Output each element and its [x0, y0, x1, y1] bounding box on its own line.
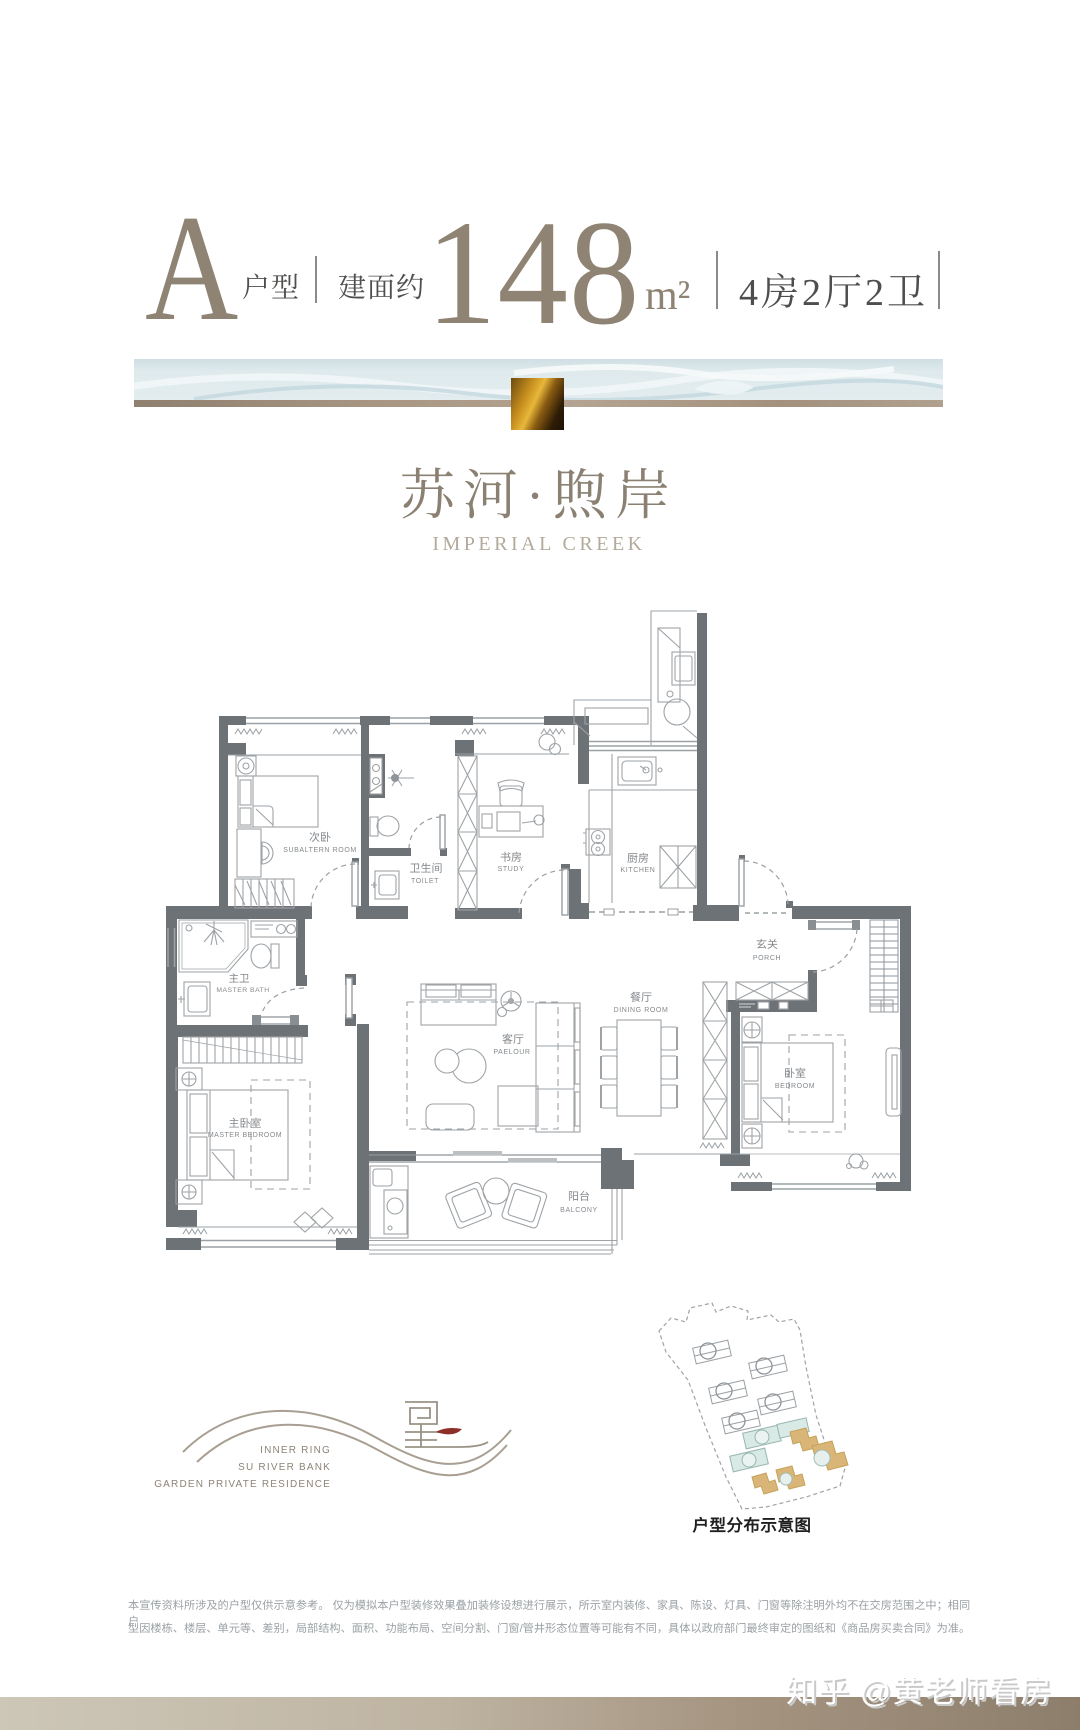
svg-text:户型分布示意图: 户型分布示意图: [693, 1512, 812, 1536]
svg-text:次卧: 次卧: [309, 829, 331, 845]
svg-text:INNER RING: INNER RING: [260, 1441, 331, 1456]
svg-text:卧室: 卧室: [784, 1065, 806, 1081]
svg-text:SUBALTERN ROOM: SUBALTERN ROOM: [283, 845, 357, 855]
svg-text:玄关: 玄关: [756, 936, 778, 952]
svg-text:主卧室: 主卧室: [229, 1115, 262, 1131]
svg-text:SU RIVER BANK: SU RIVER BANK: [238, 1458, 331, 1473]
svg-text:DINING ROOM: DINING ROOM: [614, 1005, 669, 1015]
svg-text:STUDY: STUDY: [498, 864, 525, 874]
svg-text:TOILET: TOILET: [411, 876, 439, 886]
svg-text:厨房: 厨房: [627, 850, 649, 866]
svg-text:阳台: 阳台: [568, 1188, 590, 1204]
svg-text:MASTER BEDROOM: MASTER BEDROOM: [208, 1130, 282, 1140]
svg-text:餐厅: 餐厅: [630, 989, 652, 1005]
svg-text:KITCHEN: KITCHEN: [621, 865, 656, 875]
svg-text:卫生间: 卫生间: [410, 860, 443, 876]
svg-text:MASTER BATH: MASTER BATH: [216, 984, 269, 994]
svg-text:PORCH: PORCH: [753, 953, 781, 963]
svg-text:GARDEN PRIVATE RESIDENCE: GARDEN PRIVATE RESIDENCE: [154, 1475, 331, 1490]
svg-text:书房: 书房: [500, 849, 522, 865]
svg-text:BEDROOM: BEDROOM: [775, 1081, 815, 1091]
svg-text:BALCONY: BALCONY: [560, 1205, 598, 1215]
svg-text:客厅: 客厅: [502, 1031, 524, 1047]
svg-text:PAELOUR: PAELOUR: [493, 1047, 530, 1057]
